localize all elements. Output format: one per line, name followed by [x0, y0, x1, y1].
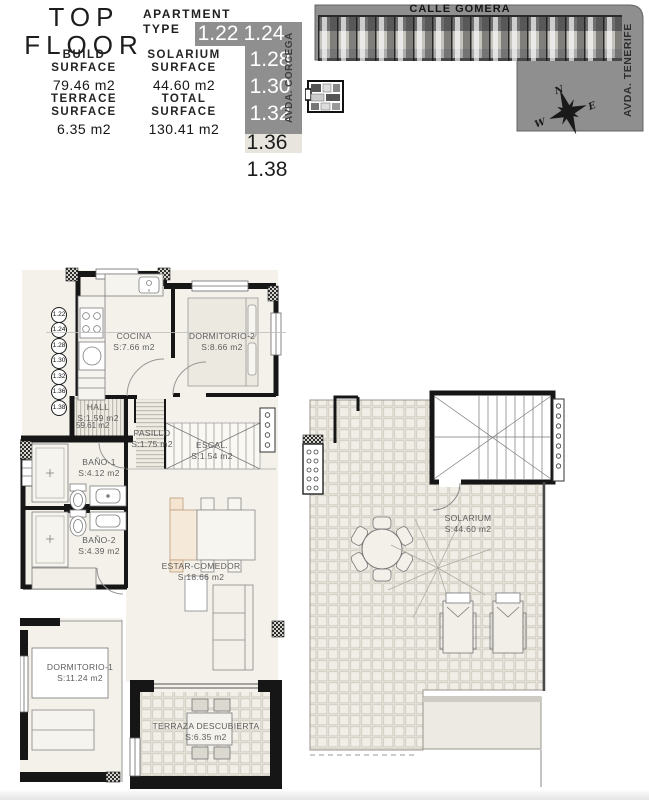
stat-total-surface: TOTAL SURFACE 130.41 m2 [124, 93, 244, 137]
callout-circle-138: 1.38 [51, 400, 67, 416]
compass-w-label: W [533, 116, 548, 130]
label-cocina: COCINAS:7.66 m2 [113, 331, 154, 352]
compass-rose-icon: N E W [528, 76, 608, 138]
site-key-plan [305, 79, 345, 115]
sofa [213, 585, 253, 670]
label-dormitorio2: DORMITORIO-2S:8.66 m2 [189, 331, 255, 352]
stair-railing [553, 399, 564, 481]
callout-circle-128: 1.28 [51, 338, 67, 354]
compass-n-label: N [552, 84, 565, 98]
label-pasillo: PASILLOS:1.75 m2 [131, 428, 172, 449]
callout-circle-130: 1.30 [51, 353, 67, 369]
callout-circle-136: 1.36 [51, 384, 67, 400]
type-number-136: 1.36 [245, 131, 289, 155]
label-terraza: TERRAZA DESCUBIERTAS:6.35 m2 [153, 721, 260, 742]
label-escalera: ESCAL.S:1.54 m2 [191, 440, 232, 461]
label-bano2: BAÑO-2S:4.39 m2 [78, 535, 119, 556]
site-buildings-row [318, 15, 622, 61]
title-line1: TOP [24, 3, 144, 31]
duct-shaft [260, 408, 275, 452]
callout-circle-132: 1.32 [51, 369, 67, 385]
page-bottom-shade [0, 789, 649, 800]
type-number-122: 1.22 [196, 22, 240, 46]
stat-solarium-surface: SOLARIUM SURFACE 44.60 m2 [124, 49, 244, 93]
sun-lounger-1 [440, 593, 476, 653]
label-dormitorio1: DORMITORIO-1S:11.24 m2 [47, 662, 113, 683]
type-number-124: 1.24 [242, 22, 286, 46]
solarium-plan [295, 385, 567, 797]
label-bano1: BAÑO-1S:4.12 m2 [78, 457, 119, 478]
planter [423, 697, 541, 749]
street-avda-tenerife: AVDA. TENERIFE [622, 22, 641, 118]
stat-solarium-value: 44.60 m2 [124, 77, 244, 93]
stat-total-value: 130.41 m2 [124, 121, 244, 137]
street-avda-corcega: AVDA. CORCEGA [284, 25, 301, 131]
floorplan-page: TOP FLOOR APARTMENT TYPE BUILD SURFACE 7… [0, 0, 649, 800]
sun-lounger-2 [490, 593, 526, 653]
callout-circle-124: 1.24 [51, 322, 67, 338]
type-number-138: 1.38 [245, 158, 289, 182]
vent-grille [303, 435, 323, 494]
label-solarium: SOLARIUMS:44.60 m2 [445, 513, 492, 534]
label-hall-total-note: 59.61 m2 [76, 421, 109, 430]
callout-circle-122: 1.22 [51, 307, 67, 323]
label-estar-comedor: ESTAR-COMEDORS:18.66 m2 [162, 561, 241, 582]
compass-e-label: E [586, 100, 598, 113]
street-calle-gomera: CALLE GOMERA [380, 3, 540, 15]
